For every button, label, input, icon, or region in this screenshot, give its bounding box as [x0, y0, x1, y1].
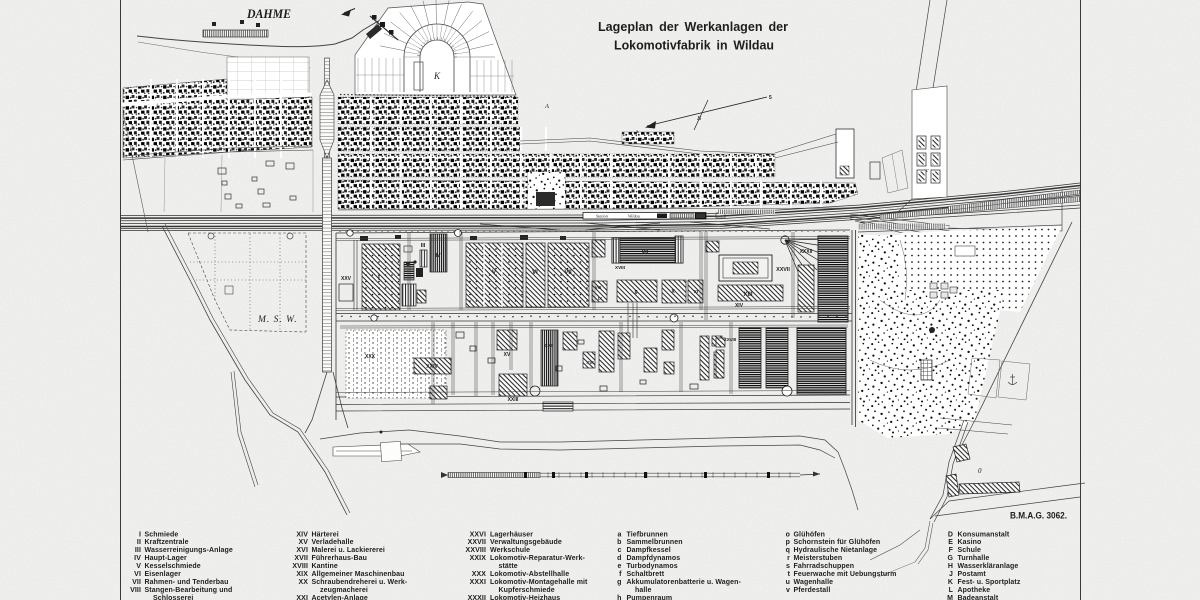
svg-text:o: o: [786, 531, 790, 538]
svg-text:I: I: [139, 531, 141, 538]
svg-text:v: v: [786, 587, 790, 594]
svg-text:XVI: XVI: [296, 547, 308, 554]
svg-text:M: M: [947, 595, 953, 600]
svg-text:Station: Station: [596, 214, 608, 219]
svg-text:III: III: [421, 243, 426, 249]
svg-text:Eisenlager: Eisenlager: [145, 571, 182, 578]
svg-text:Schmiede: Schmiede: [145, 531, 179, 538]
svg-text:Akkumulatorenbatterie u. Wagen: Akkumulatorenbatterie u. Wagen-: [627, 579, 742, 586]
svg-text:III: III: [135, 547, 141, 554]
svg-text:5: 5: [769, 95, 772, 101]
svg-text:XXII: XXII: [545, 343, 554, 348]
svg-text:G: G: [947, 555, 953, 562]
svg-text:Wasserkläranlage: Wasserkläranlage: [958, 563, 1019, 570]
svg-text:A: A: [544, 103, 549, 110]
svg-text:halle: halle: [635, 587, 651, 594]
svg-text:XVII: XVII: [294, 555, 308, 562]
svg-text:Tiefbrunnen: Tiefbrunnen: [627, 531, 668, 538]
svg-text:Meisterstuben: Meisterstuben: [794, 555, 843, 562]
svg-text:M. S. W.: M. S. W.: [257, 315, 298, 325]
svg-text:Pferdestall: Pferdestall: [794, 587, 831, 594]
svg-text:XIV: XIV: [296, 531, 308, 538]
svg-text:H: H: [948, 563, 953, 570]
svg-text:Apotheke: Apotheke: [958, 587, 991, 594]
svg-text:Haupt-Lager: Haupt-Lager: [145, 555, 187, 562]
svg-text:XXIV: XXIV: [426, 364, 438, 370]
svg-text:Pumpenraum: Pumpenraum: [627, 595, 673, 600]
svg-text:Dampfdynamos: Dampfdynamos: [627, 555, 681, 562]
svg-text:Wildau: Wildau: [628, 214, 640, 219]
svg-text:Werkschule: Werkschule: [490, 547, 530, 554]
svg-text:stätte: stätte: [499, 563, 518, 570]
svg-text:Verwaltungsgebäude: Verwaltungsgebäude: [490, 539, 562, 546]
svg-text:XXVII: XXVII: [776, 267, 790, 273]
svg-text:p: p: [786, 539, 790, 546]
svg-text:b: b: [617, 539, 621, 546]
svg-text:Schraubendreherei u. Werk-: Schraubendreherei u. Werk-: [312, 579, 408, 586]
svg-text:J: J: [949, 571, 953, 578]
svg-text:XIII: XIII: [743, 292, 752, 298]
svg-text:XIX: XIX: [296, 571, 308, 578]
svg-text:s: s: [786, 563, 790, 570]
svg-text:Kraftzentrale: Kraftzentrale: [145, 539, 189, 546]
svg-text:Härterei: Härterei: [312, 531, 339, 538]
svg-text:XV: XV: [298, 539, 308, 546]
svg-text:Sammelbrunnen: Sammelbrunnen: [627, 539, 683, 546]
svg-text:Schornstein für Glühöfen: Schornstein für Glühöfen: [794, 539, 881, 546]
svg-text:Malerei u. Lackiererei: Malerei u. Lackiererei: [312, 547, 385, 554]
svg-text:Wagenhalle: Wagenhalle: [794, 579, 834, 586]
svg-text:Acetylen-Anlage: Acetylen-Anlage: [312, 595, 368, 600]
svg-text:B.M.A.G. 3062.: B.M.A.G. 3062.: [1010, 511, 1067, 521]
svg-text:Fahrradschuppen: Fahrradschuppen: [794, 563, 855, 570]
svg-text:Rahmen- und Tenderbau: Rahmen- und Tenderbau: [145, 579, 229, 586]
svg-text:Lokomotiv-Montagehalle mit: Lokomotiv-Montagehalle mit: [490, 579, 588, 586]
svg-text:r: r: [787, 555, 790, 562]
svg-text:Führerhaus-Bau: Führerhaus-Bau: [312, 555, 367, 562]
svg-text:V: V: [492, 269, 497, 276]
svg-text:u: u: [786, 579, 790, 586]
svg-text:Schaltbrett: Schaltbrett: [627, 571, 665, 578]
svg-text:XII: XII: [642, 250, 649, 256]
svg-text:K: K: [433, 71, 441, 81]
svg-text:XXV: XXV: [341, 276, 352, 282]
svg-text:zeugmacherei: zeugmacherei: [320, 587, 368, 594]
svg-text:a: a: [618, 531, 622, 538]
svg-text:XXVII: XXVII: [468, 539, 486, 546]
svg-text:Stangen-Bearbeitung und: Stangen-Bearbeitung und: [145, 587, 233, 594]
svg-text:Allgemeiner Maschinenbau: Allgemeiner Maschinenbau: [312, 571, 405, 578]
svg-text:Kupferschmiede: Kupferschmiede: [499, 587, 555, 594]
svg-text:XXX: XXX: [365, 354, 376, 360]
svg-text:L: L: [949, 587, 954, 594]
svg-text:IV: IV: [134, 555, 141, 562]
svg-text:e: e: [618, 563, 622, 570]
svg-text:VII: VII: [564, 270, 572, 276]
svg-text:Lokomotiv-Abstellhalle: Lokomotiv-Abstellhalle: [490, 571, 569, 578]
svg-text:Hydraulische Nietanlage: Hydraulische Nietanlage: [794, 547, 878, 554]
svg-text:VI: VI: [532, 270, 538, 276]
svg-text:c: c: [618, 547, 622, 554]
svg-text:XVI: XVI: [586, 360, 593, 365]
svg-text:XXIII: XXIII: [508, 397, 519, 403]
svg-text:XXX: XXX: [472, 571, 487, 578]
svg-text:XXVIII: XXVIII: [466, 547, 486, 554]
svg-text:Lokomotivfabrik in Wildau: Lokomotivfabrik in Wildau: [614, 38, 774, 53]
svg-text:VI: VI: [134, 571, 141, 578]
svg-text:II: II: [137, 539, 141, 546]
svg-text:XXIX: XXIX: [470, 555, 487, 562]
svg-text:XXXII: XXXII: [800, 249, 813, 255]
svg-text:d: d: [617, 555, 621, 562]
svg-text:Kesselschmiede: Kesselschmiede: [145, 563, 201, 570]
svg-text:Turnhalle: Turnhalle: [958, 555, 990, 562]
svg-text:Lokomotiv-Heizhaus: Lokomotiv-Heizhaus: [490, 595, 560, 600]
svg-text:E: E: [948, 539, 953, 546]
svg-text:Feuerwache mit Uebungsturm: Feuerwache mit Uebungsturm: [794, 571, 897, 578]
svg-text:XXXI: XXXI: [470, 579, 486, 586]
svg-text:Schlosserei: Schlosserei: [153, 595, 193, 600]
svg-text:XIV: XIV: [735, 303, 744, 309]
svg-text:Postamt: Postamt: [958, 571, 987, 578]
svg-text:Schule: Schule: [958, 547, 982, 554]
svg-text:V: V: [136, 563, 141, 570]
svg-text:D: D: [948, 531, 953, 538]
svg-text:XX: XX: [298, 579, 308, 586]
svg-text:Wasserreinigungs-Anlage: Wasserreinigungs-Anlage: [145, 547, 233, 554]
svg-text:Kantine: Kantine: [312, 563, 338, 570]
svg-text:Lokomotiv-Reparatur-Werk-: Lokomotiv-Reparatur-Werk-: [490, 555, 586, 562]
svg-text:IV: IV: [435, 253, 441, 259]
svg-text:XXVI: XXVI: [470, 531, 486, 538]
svg-text:IX: IX: [598, 296, 602, 301]
svg-text:XXXII: XXXII: [468, 595, 486, 600]
svg-text:q: q: [786, 547, 790, 554]
svg-text:K: K: [948, 579, 953, 586]
svg-text:XVIII: XVIII: [615, 265, 625, 270]
svg-text:Badeanstalt: Badeanstalt: [958, 595, 999, 600]
svg-text:F: F: [949, 547, 954, 554]
svg-text:h: h: [617, 595, 621, 600]
svg-text:c: c: [926, 168, 929, 174]
svg-text:VII: VII: [132, 579, 141, 586]
svg-text:Verladehalle: Verladehalle: [312, 539, 354, 546]
svg-text:Konsumanstalt: Konsumanstalt: [958, 531, 1010, 538]
svg-text:VIII: VIII: [130, 587, 141, 594]
svg-text:Kasino: Kasino: [958, 539, 982, 546]
svg-text:XXI: XXI: [296, 595, 308, 600]
svg-text:g: g: [617, 579, 621, 586]
svg-text:Fest- u. Sportplatz: Fest- u. Sportplatz: [958, 579, 1021, 586]
svg-text:Lagerhäuser: Lagerhäuser: [490, 531, 533, 538]
svg-text:Turbodynamos: Turbodynamos: [627, 563, 678, 570]
svg-text:Glühöfen: Glühöfen: [794, 531, 826, 538]
svg-text:II: II: [634, 290, 638, 296]
svg-text:Lageplan der Werkanlagen der: Lageplan der Werkanlagen der: [598, 19, 788, 34]
svg-text:Dampfkessel: Dampfkessel: [627, 547, 671, 554]
svg-text:0: 0: [978, 467, 982, 475]
svg-text:VIII: VIII: [595, 285, 602, 290]
svg-text:DAHME: DAHME: [246, 7, 291, 21]
svg-text:XI: XI: [694, 289, 698, 294]
svg-text:XVIII: XVIII: [292, 563, 308, 570]
